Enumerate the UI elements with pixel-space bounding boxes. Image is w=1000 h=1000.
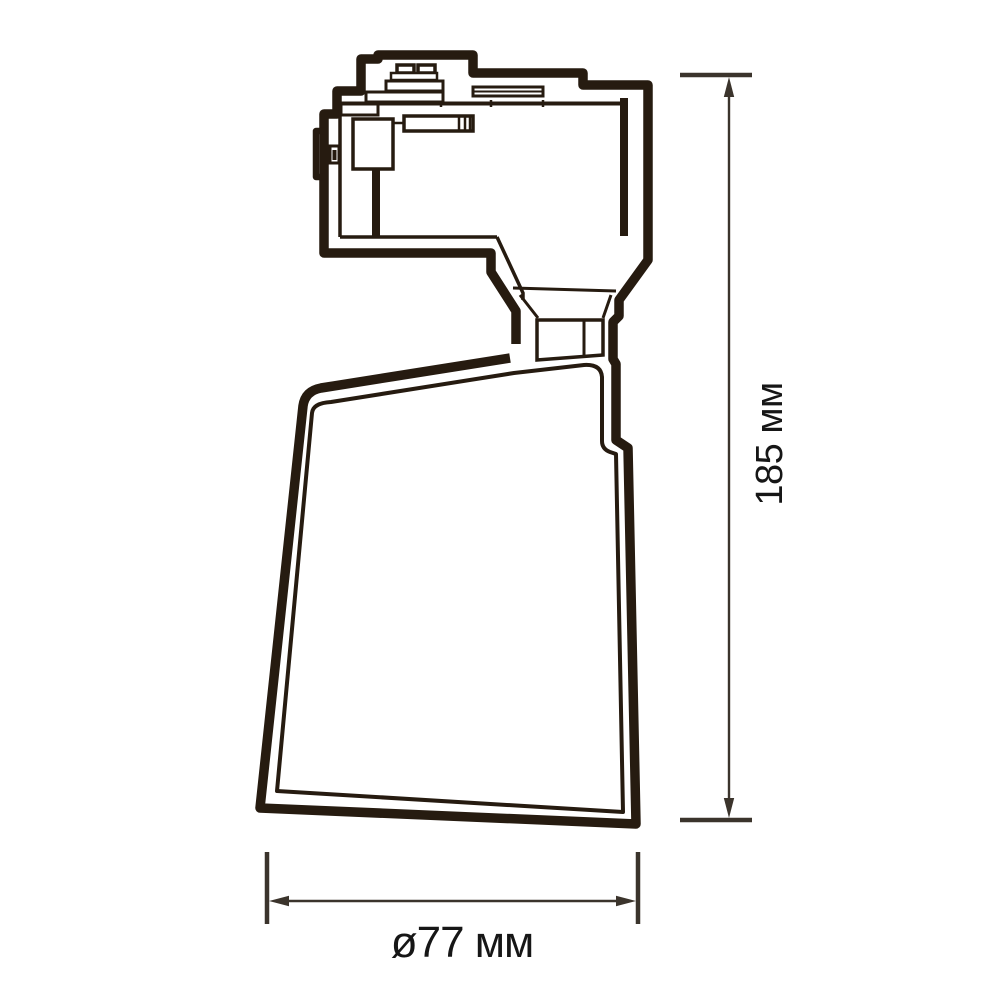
step-plate-small bbox=[391, 73, 437, 80]
technical-drawing: 185 мм ø77 мм bbox=[0, 0, 1000, 1000]
step-plate-medium bbox=[386, 81, 443, 91]
width-arrow-right bbox=[616, 896, 636, 906]
left-wall-slot-pin bbox=[333, 150, 337, 160]
width-dimension: ø77 мм bbox=[267, 852, 638, 967]
height-dimension-label: 185 мм bbox=[749, 382, 791, 505]
screw-mount-plate bbox=[341, 104, 378, 115]
screw-block bbox=[353, 119, 393, 169]
neck-connector-box bbox=[537, 320, 603, 360]
height-arrow-up bbox=[724, 77, 734, 97]
drawing-canvas: 185 мм ø77 мм bbox=[0, 0, 1000, 1000]
locking-arm bbox=[404, 116, 473, 131]
height-dimension: 185 мм bbox=[680, 75, 791, 820]
width-dimension-label: ø77 мм bbox=[391, 918, 534, 967]
height-arrow-down bbox=[724, 798, 734, 818]
step-plate-wide bbox=[366, 92, 443, 102]
width-arrow-left bbox=[269, 896, 289, 906]
fixture-outline-group bbox=[260, 55, 648, 824]
